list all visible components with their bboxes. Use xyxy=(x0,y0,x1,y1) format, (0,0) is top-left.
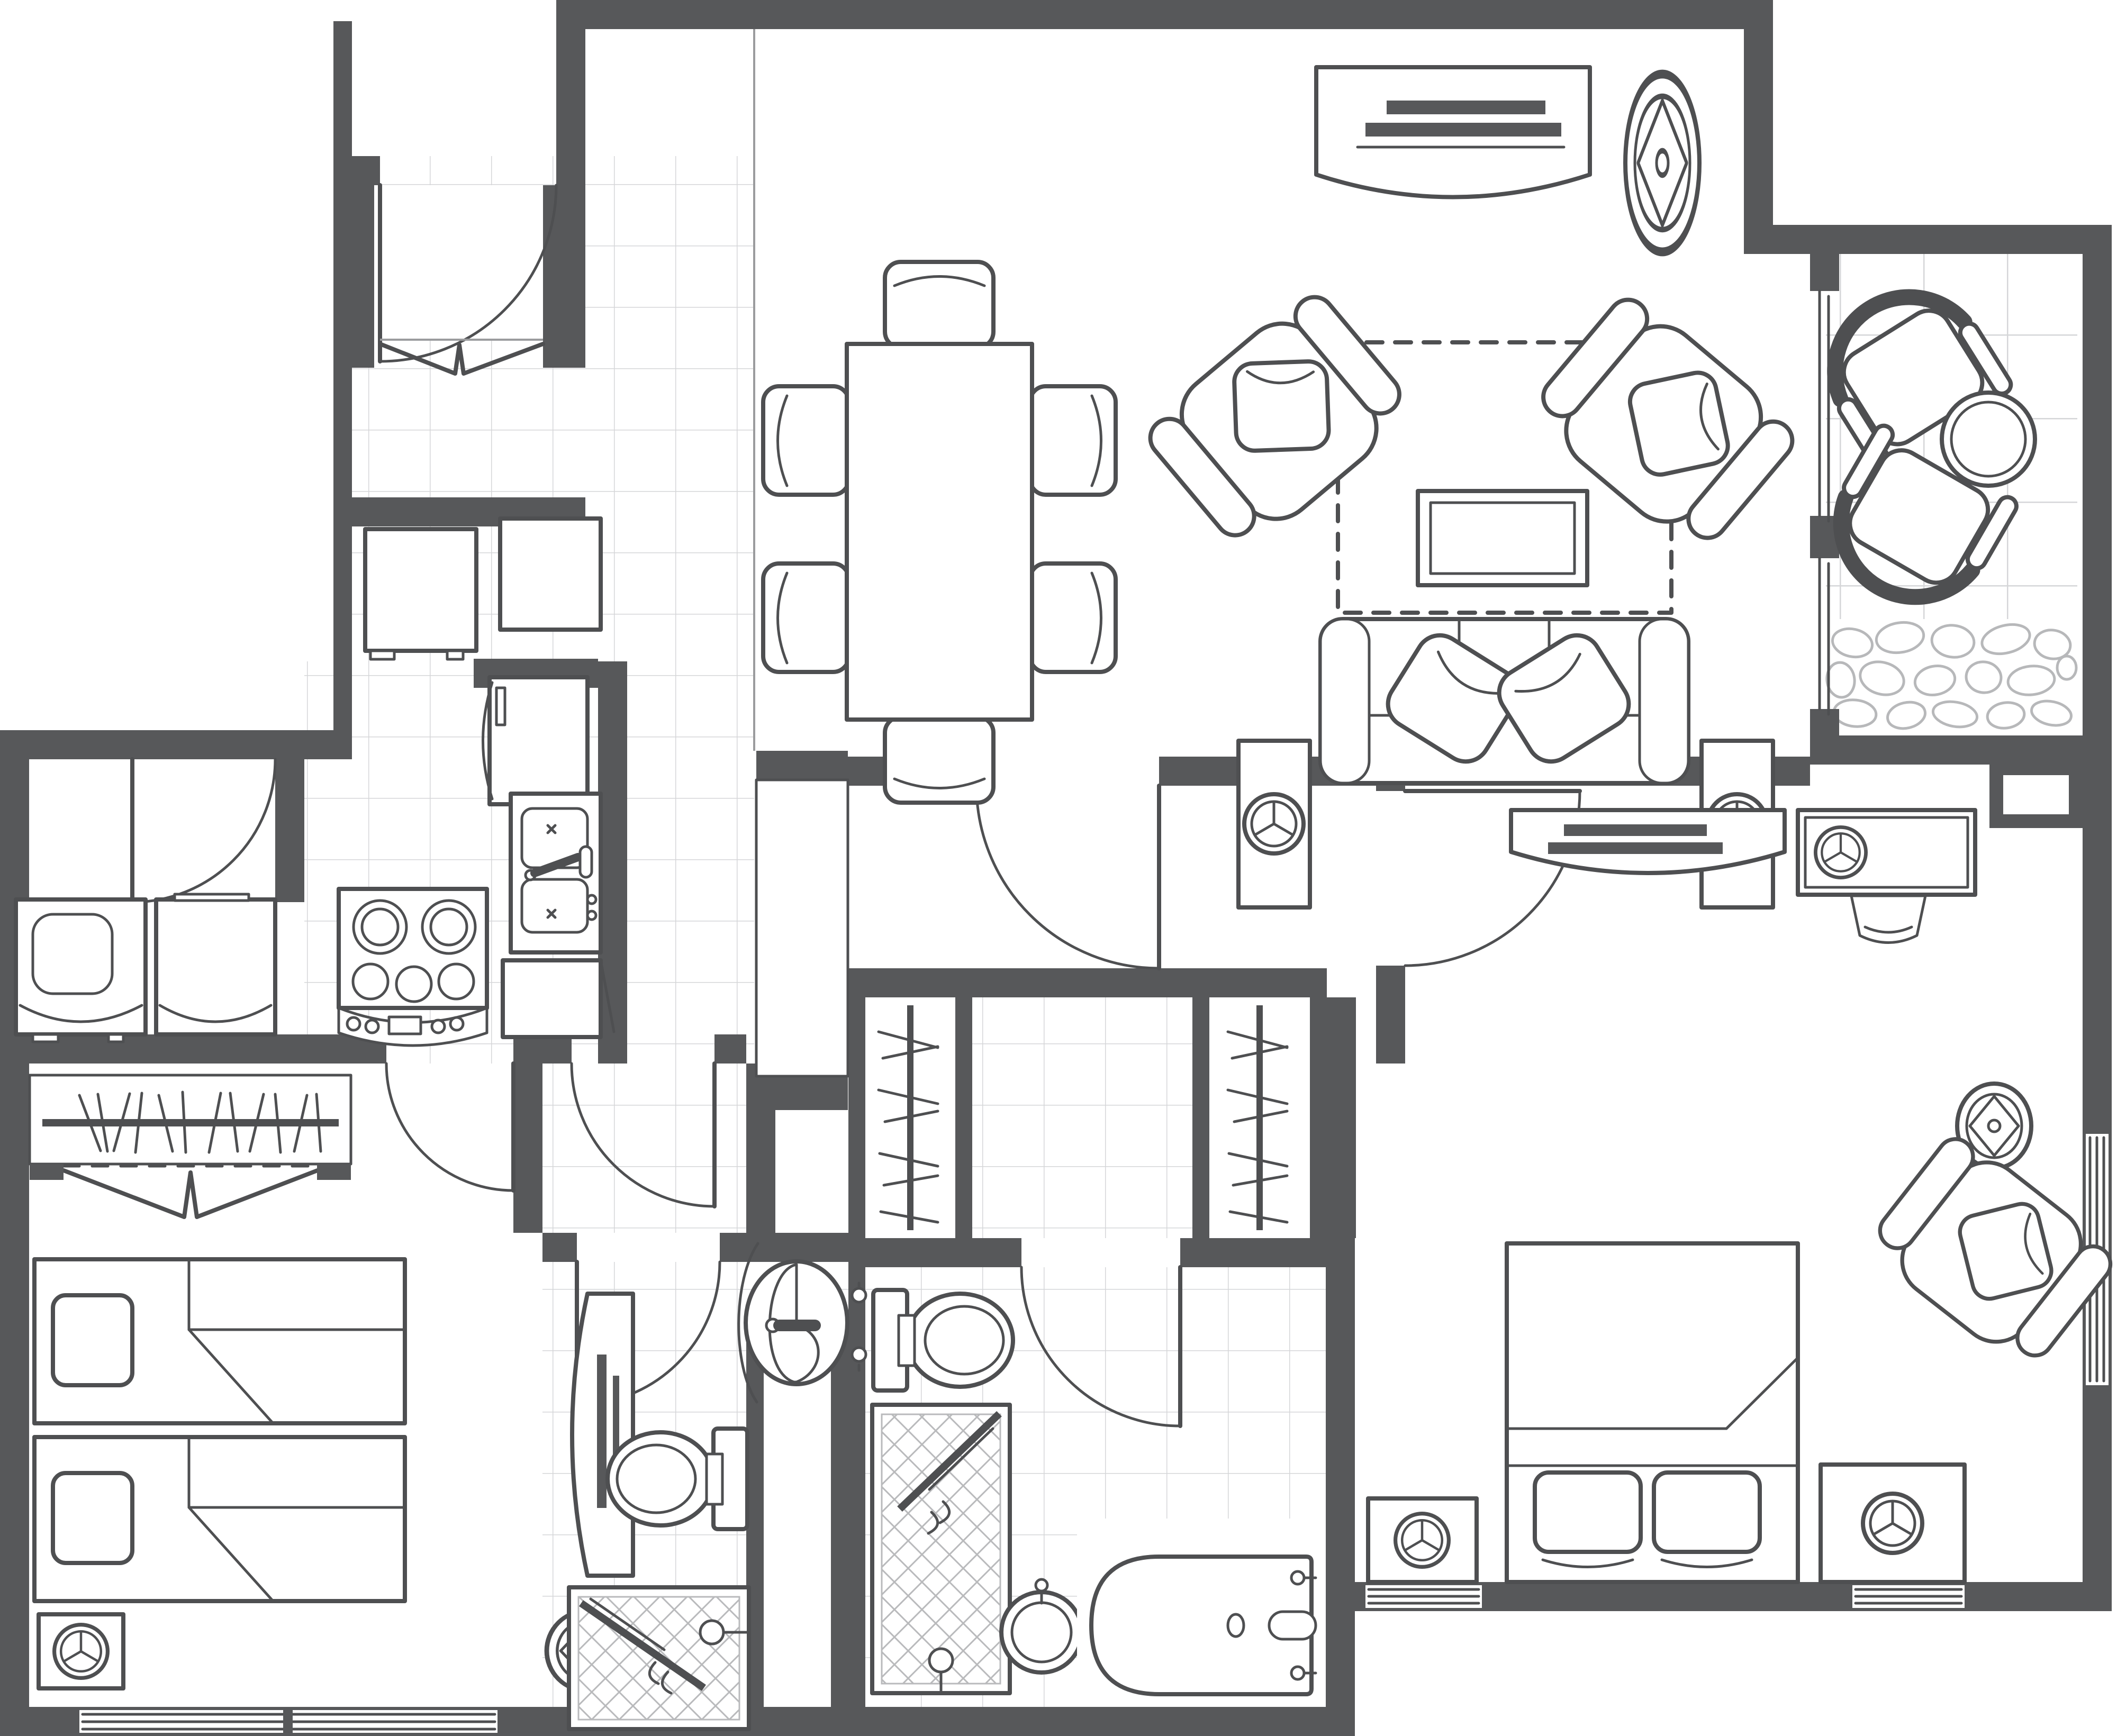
shower2-drain xyxy=(929,1649,953,1672)
bathtub-drain xyxy=(1228,1614,1244,1637)
entry-side-table-2 xyxy=(500,519,601,630)
wall-laundry-top xyxy=(0,730,333,759)
hall-door[interactable] xyxy=(976,786,1159,968)
dining-chair xyxy=(1030,563,1116,672)
coffee-table xyxy=(1418,491,1587,585)
master-window-right xyxy=(1852,1585,1965,1608)
desk xyxy=(1798,810,1975,943)
wall-left-exterior xyxy=(0,730,29,1736)
master-window-left xyxy=(1365,1585,1482,1608)
dining-chair xyxy=(885,717,993,803)
wall-balcony-top xyxy=(1744,225,2112,254)
bed-pillow-left xyxy=(1535,1473,1641,1567)
ceiling-speaker-living xyxy=(1625,74,1699,252)
media-console xyxy=(1316,67,1590,197)
floor-speaker-bedroom2 xyxy=(39,1614,123,1688)
bedroom2-window xyxy=(79,1710,497,1733)
laundry-set xyxy=(16,894,275,1042)
wall-bath-block-right xyxy=(1326,1238,1355,1736)
dining-table xyxy=(847,344,1032,720)
floor-speaker-master-right xyxy=(1821,1465,1965,1582)
tall-media-cabinet xyxy=(572,1294,633,1576)
dining-chair xyxy=(763,386,849,495)
wall-top-main xyxy=(556,0,1773,29)
shower-1 xyxy=(569,1587,749,1729)
floor-speaker-left xyxy=(1238,741,1310,907)
master-media-console xyxy=(1511,810,1785,873)
desk-chair[interactable] xyxy=(1851,896,1925,943)
king-bed xyxy=(1507,1243,1798,1582)
shower-2 xyxy=(872,1405,1010,1693)
wall-balcony-bottom xyxy=(1810,735,2112,765)
floor-plan-drawing xyxy=(0,0,2117,1736)
balcony-stone-floor xyxy=(1825,619,2077,735)
shower1-drain xyxy=(700,1621,723,1644)
dining-chair xyxy=(885,262,993,348)
entry-closet-floor xyxy=(374,185,543,340)
bed-pillow-right xyxy=(1654,1473,1760,1567)
wall-living-right xyxy=(1744,29,1773,225)
closet-right-rod xyxy=(1228,1005,1287,1230)
closet-bedroom2 xyxy=(30,1075,351,1217)
armchair-left xyxy=(1139,285,1419,557)
twin-bed-2 xyxy=(34,1437,405,1601)
master-wall-closet xyxy=(1996,768,2076,821)
wall-foyer-left xyxy=(333,21,352,759)
floor-speaker-master-left xyxy=(1368,1498,1477,1582)
toilet-1 xyxy=(608,1429,747,1529)
wall-right-exterior xyxy=(2083,225,2112,1611)
living-room-set xyxy=(1139,67,1803,907)
dishwasher xyxy=(503,960,614,1037)
washer xyxy=(16,899,146,1042)
dining-chair xyxy=(763,563,849,672)
patio-table xyxy=(1942,393,2035,486)
dryer xyxy=(156,894,275,1034)
closet-left-rod xyxy=(879,1005,938,1230)
cooktop xyxy=(339,889,487,1046)
wall-closet-strip-top xyxy=(848,968,1327,997)
sofa xyxy=(1320,619,1688,783)
entry-side-table-1 xyxy=(365,529,476,651)
refrigerator xyxy=(483,677,588,804)
floor-plan-canvas xyxy=(0,0,2117,1736)
hall-pantry-cabinet xyxy=(756,780,848,1076)
dining-chair xyxy=(1030,386,1116,495)
twin-bed-1 xyxy=(34,1259,405,1423)
bifold-doors-bedroom2[interactable] xyxy=(64,1170,318,1217)
vestibule2-floor xyxy=(972,997,1192,1238)
bathtub-spout xyxy=(1269,1612,1316,1639)
recliner-armchair xyxy=(1862,1128,2117,1376)
bathtub xyxy=(1077,1519,1326,1707)
sink-counter xyxy=(511,794,601,952)
bedroom2-door[interactable] xyxy=(386,1064,513,1190)
dining-room-set xyxy=(763,262,1116,803)
toilet-2 xyxy=(873,1290,1013,1390)
